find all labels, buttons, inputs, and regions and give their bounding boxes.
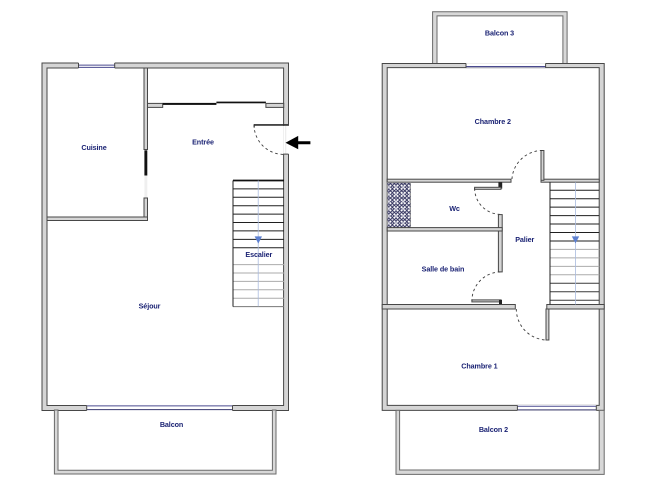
svg-text:Cuisine: Cuisine (81, 143, 106, 152)
svg-text:Escalier: Escalier (245, 250, 272, 259)
svg-text:Chambre 2: Chambre 2 (475, 117, 511, 126)
svg-text:Chambre 1: Chambre 1 (461, 362, 497, 371)
svg-text:Séjour: Séjour (139, 302, 161, 311)
svg-text:Balcon 2: Balcon 2 (479, 425, 508, 434)
svg-text:Salle de bain: Salle de bain (422, 265, 465, 274)
svg-text:Entrée: Entrée (192, 138, 214, 147)
svg-text:Balcon 3: Balcon 3 (485, 29, 514, 38)
svg-text:Palier: Palier (515, 235, 534, 244)
svg-text:Balcon: Balcon (160, 420, 183, 429)
svg-text:Wc: Wc (449, 204, 460, 213)
